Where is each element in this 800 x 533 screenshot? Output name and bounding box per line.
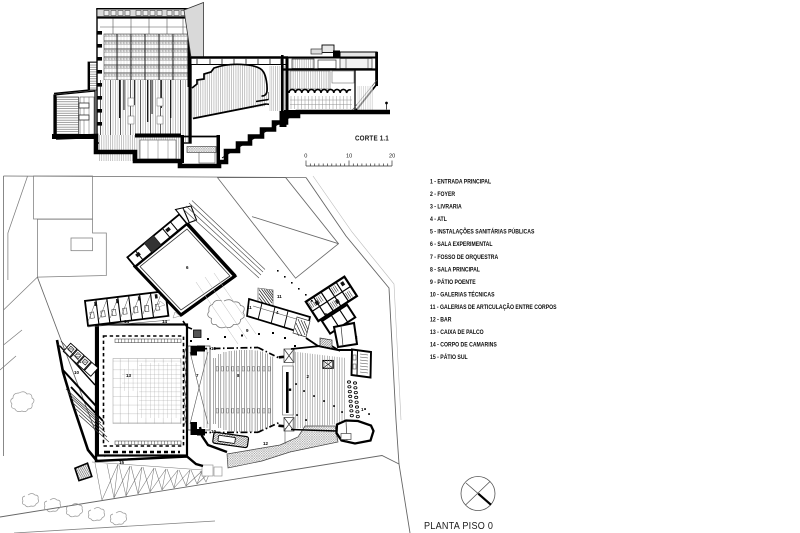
- svg-text:3 - LIVRARIA: 3 - LIVRARIA: [430, 204, 462, 211]
- svg-text:7 - FOSSO DE ORQUESTRA: 7 - FOSSO DE ORQUESTRA: [430, 254, 499, 261]
- svg-text:12: 12: [263, 441, 269, 446]
- svg-text:5 - INSTALAÇÕES SANITÁRIAS PÚB: 5 - INSTALAÇÕES SANITÁRIAS PÚBLICAS: [430, 228, 534, 236]
- svg-text:10: 10: [346, 154, 352, 160]
- svg-text:10 - GALERIAS TÉCNICAS: 10 - GALERIAS TÉCNICAS: [430, 290, 495, 299]
- svg-text:0: 0: [304, 154, 307, 160]
- svg-text:1 - ENTRADA PRINCIPAL: 1 - ENTRADA PRINCIPAL: [430, 179, 491, 186]
- svg-text:8 - SALA PRINCIPAL: 8 - SALA PRINCIPAL: [430, 267, 480, 274]
- svg-text:11: 11: [277, 294, 282, 299]
- svg-text:6 - SALA EXPERIMENTAL: 6 - SALA EXPERIMENTAL: [430, 242, 493, 249]
- svg-text:4 - ATL: 4 - ATL: [430, 217, 447, 224]
- svg-text:20: 20: [389, 154, 395, 160]
- svg-text:10: 10: [211, 429, 217, 434]
- svg-text:2 - FOYER: 2 - FOYER: [430, 192, 456, 199]
- svg-text:15: 15: [119, 460, 125, 465]
- svg-text:10: 10: [74, 370, 80, 375]
- svg-text:13 - CAIXA DE PALCO: 13 - CAIXA DE PALCO: [430, 330, 484, 337]
- svg-text:15 - PÁTIO SUL: 15 - PÁTIO SUL: [430, 354, 468, 362]
- svg-text:11 - GALERIAS DE ARTICULAÇÃO E: 11 - GALERIAS DE ARTICULAÇÃO ENTRE CORPO…: [430, 303, 557, 311]
- svg-text:PLANTA PISO 0: PLANTA PISO 0: [424, 521, 493, 533]
- svg-text:14 - CORPO DE CAMARINS: 14 - CORPO DE CAMARINS: [430, 342, 497, 349]
- svg-text:11: 11: [247, 305, 252, 310]
- svg-text:14: 14: [124, 319, 130, 324]
- svg-text:CORTE 1.1: CORTE 1.1: [355, 135, 389, 143]
- svg-text:10: 10: [211, 346, 217, 351]
- svg-text:9 - PÁTIO POENTE: 9 - PÁTIO POENTE: [430, 278, 476, 286]
- svg-text:13: 13: [126, 373, 132, 378]
- svg-text:14: 14: [162, 319, 168, 324]
- svg-text:12 - BAR: 12 - BAR: [430, 317, 452, 324]
